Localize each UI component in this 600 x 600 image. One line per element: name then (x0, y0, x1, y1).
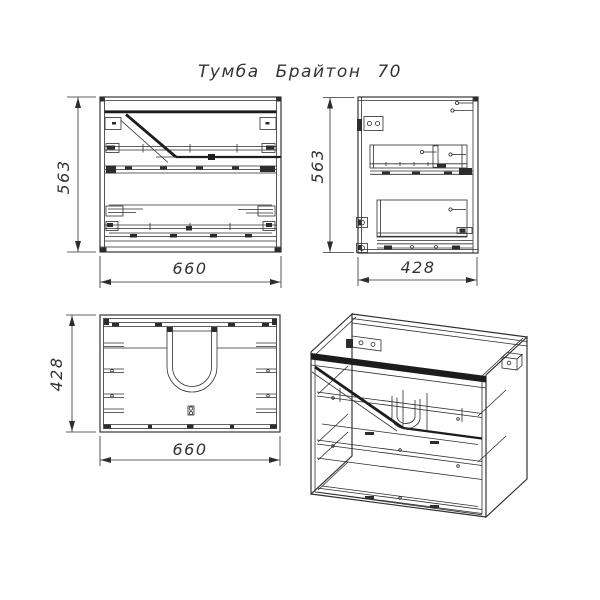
drawing-sheet: Тумба Брайтон 70 (0, 0, 600, 600)
top-depth-dim-label: 428 (49, 349, 65, 399)
front-width-dim-label: 660 (160, 261, 220, 277)
isometric-view-drawing (295, 295, 550, 535)
front-height-dim-label: 563 (56, 152, 72, 202)
front-carcass (100, 97, 281, 252)
drawer-slide-rails-left (104, 343, 124, 413)
side-height-dim-label: 563 (310, 141, 326, 191)
side-depth-dim-label: 428 (388, 260, 448, 276)
drawing-title: Тумба Брайтон 70 (0, 62, 600, 82)
iso-carcass (311, 314, 527, 517)
side-carcass (357, 97, 479, 253)
drawer-slide-rails-right (256, 343, 276, 413)
top-width-dim-label: 660 (160, 442, 220, 458)
top-carcass (100, 315, 280, 432)
